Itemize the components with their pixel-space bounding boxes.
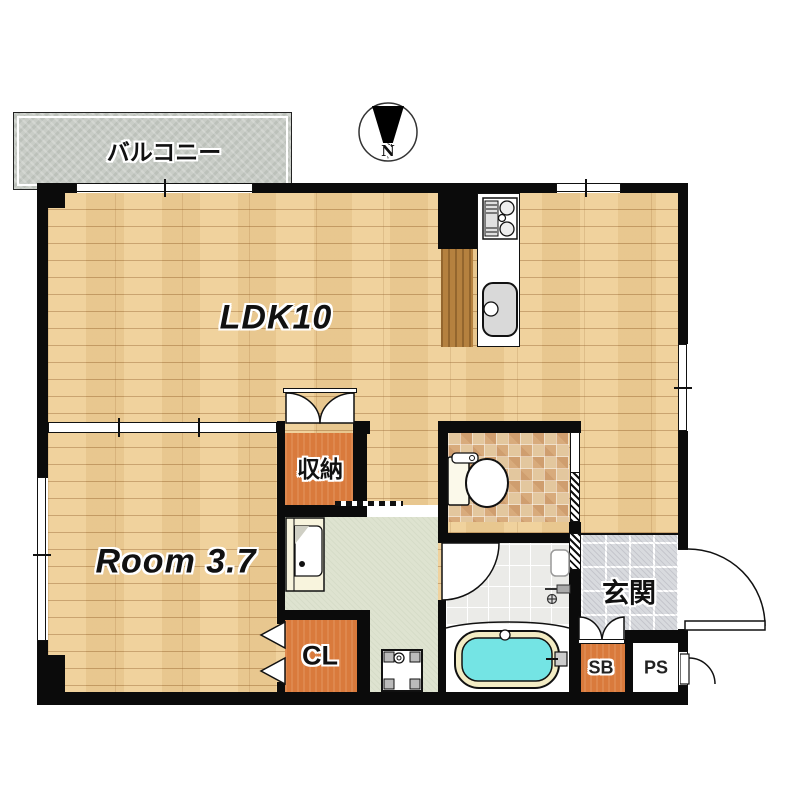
washroom-entry-dashed: [335, 501, 403, 506]
toilet-door: [570, 432, 580, 473]
wall-right-1: [678, 183, 688, 344]
kitchen-window-tick: [585, 179, 587, 197]
column-bottom-left: [37, 655, 65, 695]
bathtub-icon: [446, 616, 569, 692]
toilet-bath-wall: [569, 522, 581, 533]
kitchen-counter-side: [441, 249, 473, 347]
partition-tick-2: [198, 418, 200, 437]
kitchen-wall-block: [438, 190, 477, 249]
gas-stove-icon: [482, 197, 518, 240]
ps-wall-top: [633, 630, 678, 643]
wall-left-1: [37, 183, 48, 478]
ldk-label: LDK10: [220, 299, 333, 338]
shower-mixer-icon: [545, 549, 571, 607]
wall-right-2: [678, 431, 688, 549]
bedroom-wall-right-1: [277, 421, 285, 624]
column-top-left: [37, 183, 65, 208]
balcony-label: バルコニー: [107, 133, 222, 167]
ps-door: [680, 650, 720, 690]
left-window: [37, 477, 46, 641]
closet-label: CL: [302, 641, 338, 672]
entrance-label: 玄関: [602, 572, 656, 611]
wall-bottom: [37, 692, 688, 705]
bathroom-door: [440, 541, 503, 604]
toilet-door-track: [570, 472, 580, 522]
floor-plan: バルコニー N: [0, 0, 800, 800]
closet-wall-right: [357, 610, 370, 692]
washroom-threshold: [367, 505, 438, 517]
closet-folding-door: [257, 620, 287, 686]
storage-label: 収納: [297, 450, 343, 484]
kitchen-window: [556, 183, 621, 192]
storage-double-door: [285, 391, 355, 424]
partition-tick-1: [118, 418, 120, 437]
shoebox-door-sill: [578, 639, 625, 644]
balcony-window-tick: [164, 179, 166, 197]
toilet-icon: [446, 452, 512, 510]
room-label: Room 3.7: [95, 543, 256, 582]
entrance-step-edge: [581, 533, 678, 535]
wall-top-2: [252, 183, 557, 193]
left-window-tick: [33, 554, 51, 556]
toilet-wall-top: [438, 421, 577, 433]
shoebox-double-door: [578, 615, 625, 642]
kitchen-sink-icon: [482, 282, 518, 337]
bath-wall-left: [438, 600, 446, 692]
shoebox-label: SB: [588, 658, 613, 679]
storage-wall-bottom: [277, 505, 367, 517]
pipe-space-label: PS: [644, 658, 668, 679]
vanity-basin-icon: [285, 517, 325, 592]
entry-door: [683, 545, 775, 637]
ldk-room-partition: [48, 422, 277, 433]
compass-north-label: N: [381, 142, 395, 160]
washing-machine-pan-icon: [381, 649, 423, 692]
sb-ps-divider-wall: [625, 630, 633, 692]
right-window-tick: [674, 387, 692, 389]
